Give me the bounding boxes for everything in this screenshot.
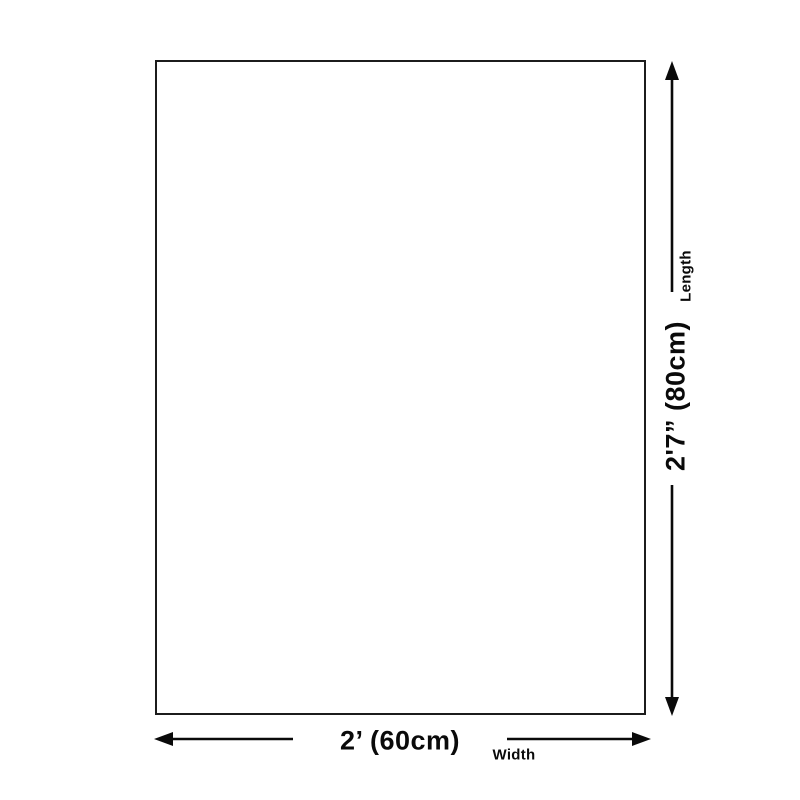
width-arrow-right-icon [507, 732, 651, 746]
length-arrow-down-icon [665, 485, 679, 716]
width-dimension-value: 2’ (60cm) [340, 726, 460, 757]
width-arrow-left-icon [154, 732, 293, 746]
width-dimension-label: Width [492, 747, 535, 764]
length-dimension-value: 2'7” (80cm) [661, 321, 692, 471]
product-outline-rectangle [155, 60, 646, 715]
size-diagram: 2’ (60cm) Width 2'7” (80cm) Length [0, 0, 800, 800]
length-dimension-label: Length [678, 250, 695, 302]
